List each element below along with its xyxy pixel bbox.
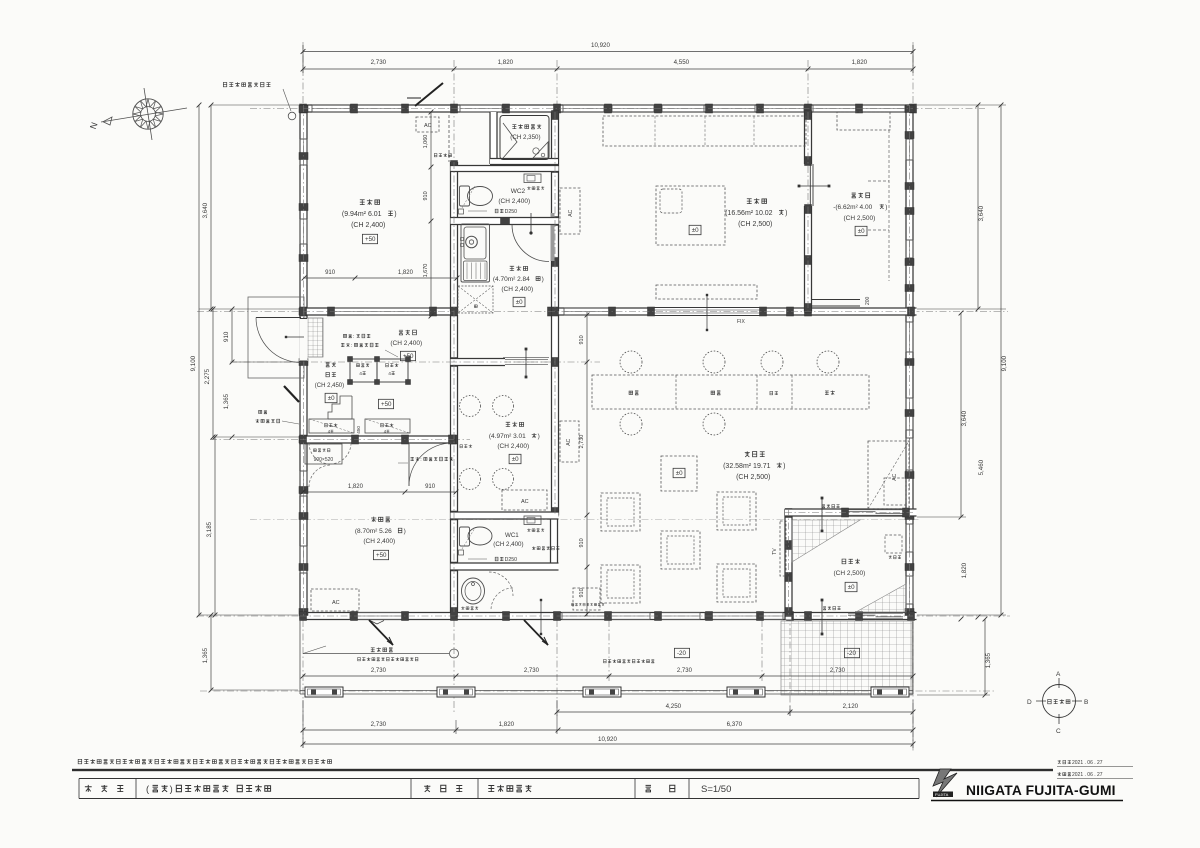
svg-text:(CH 2,400): (CH 2,400) (498, 198, 530, 205)
svg-text:910: 910 (223, 331, 230, 342)
svg-text:NIIGATA FUJITA-GUMI: NIIGATA FUJITA-GUMI (966, 783, 1116, 798)
svg-text:4,550: 4,550 (674, 59, 690, 66)
svg-text:(CH 2,450): (CH 2,450) (315, 383, 344, 389)
svg-text:1,820: 1,820 (499, 721, 515, 728)
svg-text:9,100: 9,100 (1001, 355, 1008, 371)
svg-text:2,275: 2,275 (204, 368, 211, 384)
svg-text:D: D (1027, 699, 1032, 706)
svg-text:10,920: 10,920 (598, 736, 617, 743)
svg-text:AC: AC (521, 499, 529, 505)
svg-text:10,920: 10,920 (591, 42, 610, 49)
svg-text:1,820: 1,820 (498, 59, 514, 66)
svg-text:3,640: 3,640 (978, 205, 985, 221)
svg-text:1,820: 1,820 (961, 562, 968, 578)
svg-text:(CH 2,400): (CH 2,400) (497, 443, 529, 450)
svg-text::: : (351, 343, 352, 349)
svg-text:910: 910 (425, 484, 436, 490)
svg-text:200: 200 (865, 296, 871, 305)
svg-text:±0: ±0 (516, 299, 523, 306)
svg-text:AC: AC (568, 209, 574, 216)
svg-text:2021 . 06 . 27: 2021 . 06 . 27 (1072, 760, 1103, 766)
svg-text:6,370: 6,370 (727, 721, 743, 728)
svg-text:910: 910 (325, 270, 336, 276)
svg-text:±0: ±0 (692, 227, 699, 234)
svg-text:): ) (783, 463, 785, 470)
svg-text:±0: ±0 (328, 395, 335, 402)
svg-text:(4.97m² 3.01: (4.97m² 3.01 (489, 433, 526, 440)
svg-text:2,730: 2,730 (371, 59, 387, 66)
svg-text:3,640: 3,640 (961, 410, 968, 426)
svg-text:1,820: 1,820 (852, 59, 868, 66)
svg-text::: : (353, 334, 354, 340)
svg-text:): ) (538, 433, 540, 440)
svg-text:2,120: 2,120 (843, 703, 859, 710)
svg-text:D250: D250 (505, 557, 518, 563)
svg-text:910: 910 (579, 538, 585, 547)
svg-text:(8.70m² 5.26: (8.70m² 5.26 (355, 528, 392, 535)
svg-text:(CH 2,400): (CH 2,400) (390, 340, 422, 347)
svg-text:4,250: 4,250 (666, 703, 682, 710)
svg-text:FIX: FIX (737, 319, 745, 325)
svg-text:D250: D250 (505, 209, 518, 215)
svg-text:±0: ±0 (848, 584, 855, 591)
svg-text:TV: TV (772, 548, 778, 555)
svg-text:(9.94m² 6.01: (9.94m² 6.01 (342, 211, 382, 218)
svg-text:(CH 2,400): (CH 2,400) (363, 538, 395, 545)
svg-text:(CH 2,500): (CH 2,500) (736, 474, 770, 481)
svg-text:B: B (1084, 699, 1088, 706)
svg-text:AC: AC (332, 600, 340, 606)
svg-text:FUJITA: FUJITA (935, 792, 949, 797)
svg-text:4: 4 (359, 371, 362, 377)
svg-text:9,100: 9,100 (190, 355, 197, 371)
svg-text:2,730: 2,730 (371, 668, 387, 674)
svg-text:1,365: 1,365 (985, 652, 992, 668)
svg-text:1,060: 1,060 (423, 135, 429, 149)
svg-text:4: 4 (388, 371, 391, 377)
svg-text:-(6.62m² 4.00: -(6.62m² 4.00 (833, 204, 872, 211)
svg-text:3,640: 3,640 (202, 202, 209, 218)
svg-text:(CH 2,500): (CH 2,500) (738, 221, 772, 228)
svg-text:AC: AC (892, 473, 898, 480)
svg-text:2,730: 2,730 (830, 668, 846, 674)
svg-text:+50: +50 (365, 236, 376, 243)
svg-text:1,820: 1,820 (348, 484, 364, 490)
svg-text:910: 910 (423, 191, 429, 200)
svg-text:A: A (1056, 671, 1061, 678)
svg-text:910: 910 (579, 335, 585, 344)
svg-text:2,730: 2,730 (677, 668, 693, 674)
svg-text:5,460: 5,460 (978, 459, 985, 475)
svg-text:-20: -20 (677, 650, 687, 657)
svg-text:900×520: 900×520 (314, 457, 334, 463)
svg-text:2,730: 2,730 (524, 668, 540, 674)
svg-text:): ) (394, 211, 396, 218)
svg-text:C: C (1056, 728, 1061, 735)
svg-text:(CH 2,350): (CH 2,350) (510, 134, 540, 141)
svg-text:±0: ±0 (512, 456, 519, 463)
svg-text:): ) (170, 784, 173, 794)
svg-text::: : (420, 457, 421, 463)
svg-text:(CH 2,400): (CH 2,400) (501, 286, 533, 293)
svg-text:(32.58m² 19.71: (32.58m² 19.71 (723, 463, 771, 470)
svg-text:(CH 2,500): (CH 2,500) (844, 215, 876, 222)
svg-text:1,820: 1,820 (398, 270, 414, 276)
svg-text:1,365: 1,365 (223, 393, 230, 409)
svg-text:): ) (542, 276, 544, 283)
svg-text:2021 . 06 . 27: 2021 . 06 . 27 (1072, 772, 1103, 778)
svg-text:±0: ±0 (676, 470, 683, 477)
svg-text:±0: ±0 (858, 228, 865, 235)
svg-text:WC2: WC2 (511, 188, 526, 195)
svg-text:3,185: 3,185 (206, 521, 213, 537)
svg-text:(CH 2,500): (CH 2,500) (834, 570, 866, 577)
svg-text:1,670: 1,670 (423, 264, 429, 278)
svg-text:(CH 2,400): (CH 2,400) (493, 541, 523, 548)
svg-text:S=1/50: S=1/50 (701, 784, 731, 795)
svg-text:+50: +50 (376, 552, 387, 559)
svg-text:1,365: 1,365 (202, 647, 209, 663)
svg-text:450: 450 (356, 426, 361, 434)
svg-text:(16.56m² 10.02: (16.56m² 10.02 (725, 210, 773, 217)
svg-text:2,730: 2,730 (371, 721, 387, 728)
svg-text:): ) (404, 528, 406, 535)
svg-text:): ) (785, 210, 787, 217)
svg-text:+50: +50 (381, 401, 392, 408)
svg-text:AC: AC (566, 438, 572, 445)
svg-text:2,730: 2,730 (579, 435, 585, 449)
svg-text:(4.70m² 2.84: (4.70m² 2.84 (493, 276, 530, 283)
svg-text:-20: -20 (847, 650, 857, 657)
svg-text:(CH 2,400): (CH 2,400) (351, 222, 385, 229)
svg-text:): ) (885, 204, 887, 211)
svg-text:AC: AC (424, 123, 432, 129)
svg-text:WC1: WC1 (505, 532, 519, 539)
svg-text:910: 910 (579, 588, 585, 597)
